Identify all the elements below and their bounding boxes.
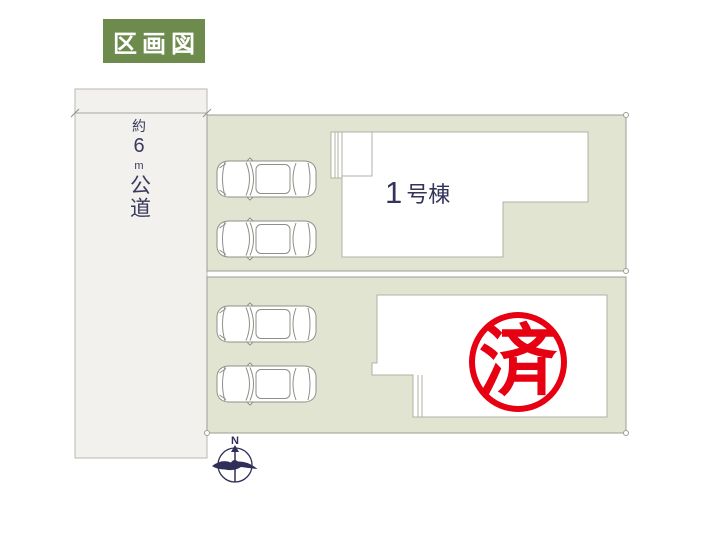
title-badge: 区画図 [103,19,205,63]
corner-marker [205,431,210,436]
building-1-steps [331,132,342,178]
corner-marker [624,113,629,118]
road-width-unit: m [134,160,143,172]
road-width-value: 6 [133,135,144,157]
title-badge-label: 区画図 [108,24,200,59]
car-icon [217,303,316,345]
corner-marker [624,269,629,274]
sold-stamp: 済 [469,312,567,412]
road-type-label: 公道 [127,174,150,220]
sold-stamp-label: 済 [479,323,557,401]
compass-icon [212,445,258,482]
car-icon [217,218,316,260]
car-icon [217,363,316,405]
building-1-number: 1 [385,177,402,208]
building-1-label: 1 号棟 [385,177,450,208]
site-plan-drawing [0,0,719,539]
road-label: 約 6 m 公道 [123,119,155,220]
building-1-porch [342,132,372,176]
corner-marker [624,431,629,436]
road-approx-label: 約 [132,119,146,134]
plot-map-diagram: 区画図 約 6 m 公道 1 号棟 済 N [0,0,719,539]
building-1-suffix: 号棟 [406,184,450,206]
compass-north-label: N [227,435,243,447]
car-icon [217,158,316,200]
